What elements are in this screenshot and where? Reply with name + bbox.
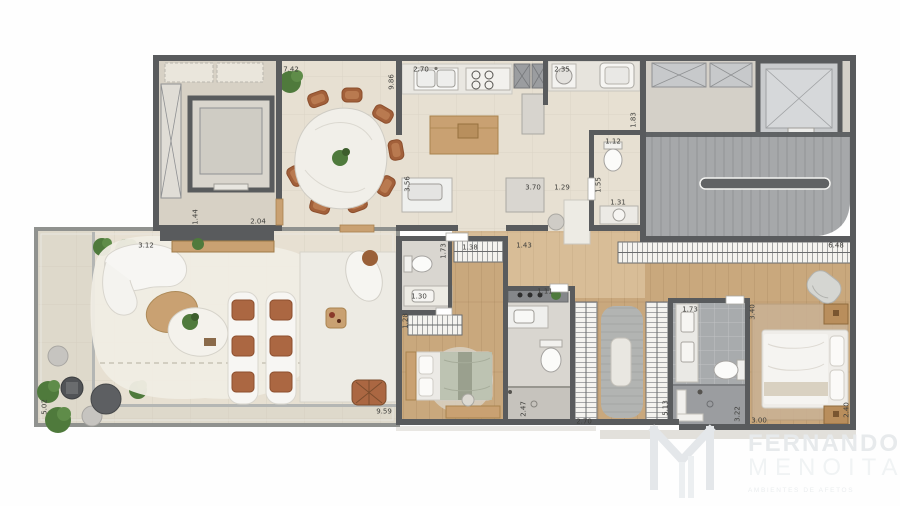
dim-kitchen-bottom-b: 1.29 [554,185,570,192]
dim-service-right: 1.83 [631,112,638,128]
dim-wc-left: 1.55 [596,177,603,193]
shower-glass [673,384,745,386]
doormat [165,63,213,82]
pouf [48,346,68,366]
dim-service-top: 2.35 [554,67,570,74]
counter-basin [408,184,442,200]
dim-bed1-top: 1.43 [516,243,532,250]
dim-mbath-right: 3.40 [750,304,757,320]
sink-basin [437,70,455,87]
pillow [419,356,433,374]
toilet-icon [412,256,432,272]
dim-bath2-sink: 1.11 [537,289,553,296]
desk-chair [462,394,474,406]
brand-monogram-icon [646,414,741,499]
wash-basin-icon [514,310,534,323]
shower-glass [506,386,570,388]
living-room [90,236,396,405]
desk [446,406,500,418]
pouf-tray [66,382,78,394]
shower-head-icon [508,390,512,394]
dim-bed1-closet-b: 1.28 [403,313,410,329]
dim-bed1-closet: 1.38 [462,245,478,252]
dim-dining-top: 7.42 [283,67,299,74]
centerpiece-plant-icon [342,148,350,156]
dim-wardrobe-top: 6.48 [828,243,844,250]
faucet-icon [434,67,437,70]
toilet-icon [541,348,561,372]
dim-lavabo: 1.30 [411,294,427,301]
dim-dining-right: 9.86 [389,74,396,90]
toilet-tank [540,340,562,347]
cushion [270,372,292,392]
brand-tagline: AMBIENTES DE AFETOS [748,487,900,494]
entry-door [276,199,283,225]
feature-wall [160,226,274,241]
toilet-icon [604,149,622,171]
shower [506,388,570,422]
fridge [522,94,544,134]
cushion [270,300,292,320]
console-desk [564,200,590,244]
dim-sideboard: 2.04 [250,219,266,226]
dim-mbath-top: 1.73 [682,307,698,314]
nightstand-knob [833,310,839,316]
cutting-board [458,124,478,138]
stool [548,214,564,230]
cushion [232,300,254,320]
doormat [217,63,263,82]
balcony-band-1 [396,426,596,431]
pillow [419,378,433,396]
tub-basin [605,67,629,84]
dim-kitchen-bottom-a: 3.70 [525,185,541,192]
toilet-tank [404,256,412,272]
chaise-headrest [362,250,378,266]
dim-terrace-left: 5.02 [42,399,49,415]
cushion [270,336,292,356]
dim-kitchen-top: 2.70 [413,67,429,74]
closet [575,302,668,420]
closet-bench [611,338,631,386]
pillow [830,370,844,400]
headboard [406,352,416,400]
toilet-icon [714,361,738,379]
stair-block [646,61,850,237]
elevator-door [214,184,248,190]
dim-kitchen-left: 3.56 [405,176,412,192]
dim-bath2-bottom: 2.70 [576,419,592,426]
side-table [326,308,346,328]
dim-wc-bottom: 1.31 [610,200,626,207]
sideboard [172,241,274,252]
plant-icon [192,238,204,250]
door-slab [726,296,744,304]
floor-plan: 7.42 9.86 2.70 2.35 1.83 1.12 3.56 3.70 … [0,0,900,506]
wash-basin-icon [681,312,694,332]
door-slab [436,308,452,315]
dim-terrace-bottom: 9.59 [376,409,392,416]
plant-icon [191,313,199,321]
dim-wc-top: 1.12 [605,139,621,146]
dim-bed1-closet-depth: 1.73 [441,243,448,259]
throw-blanket [764,382,828,396]
tray [204,338,216,346]
dim-lobby-side: 1.44 [193,209,200,225]
wash-basin-icon [681,342,694,362]
wash-basin-icon [613,209,625,221]
cushion [232,336,254,356]
shower-head-icon [698,390,703,395]
pillow [830,336,844,366]
ottoman-round [91,384,121,414]
throw-blanket [458,352,472,400]
decor [329,312,335,318]
dim-bath2-left: 2.47 [521,401,528,417]
door-sill [340,225,374,232]
decor [337,319,341,323]
brand-watermark: FERNANDO MENOITA AMBIENTES DE AFETOS [646,414,900,506]
elevator-floor [200,108,262,174]
cushion [232,372,254,392]
dim-living-top: 3.12 [138,243,154,250]
stair-rail [700,178,830,189]
door-slab [446,233,468,241]
brand-line2: MENOITA [748,454,900,482]
brand-text: FERNANDO MENOITA AMBIENTES DE AFETOS [748,430,900,494]
